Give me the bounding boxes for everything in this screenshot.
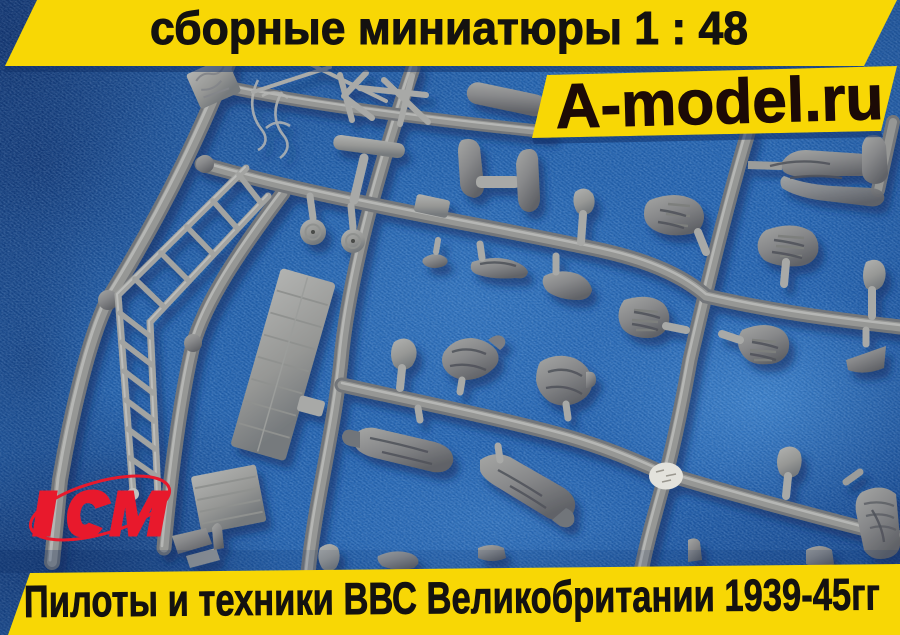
- svg-text:сборные миниатюры 1 : 48: сборные миниатюры 1 : 48: [150, 2, 748, 54]
- svg-text:Пилоты и техники ВВС Великобри: Пилоты и техники ВВС Великобритании 1939…: [24, 569, 880, 627]
- svg-text:A-model.ru: A-model.ru: [555, 63, 885, 142]
